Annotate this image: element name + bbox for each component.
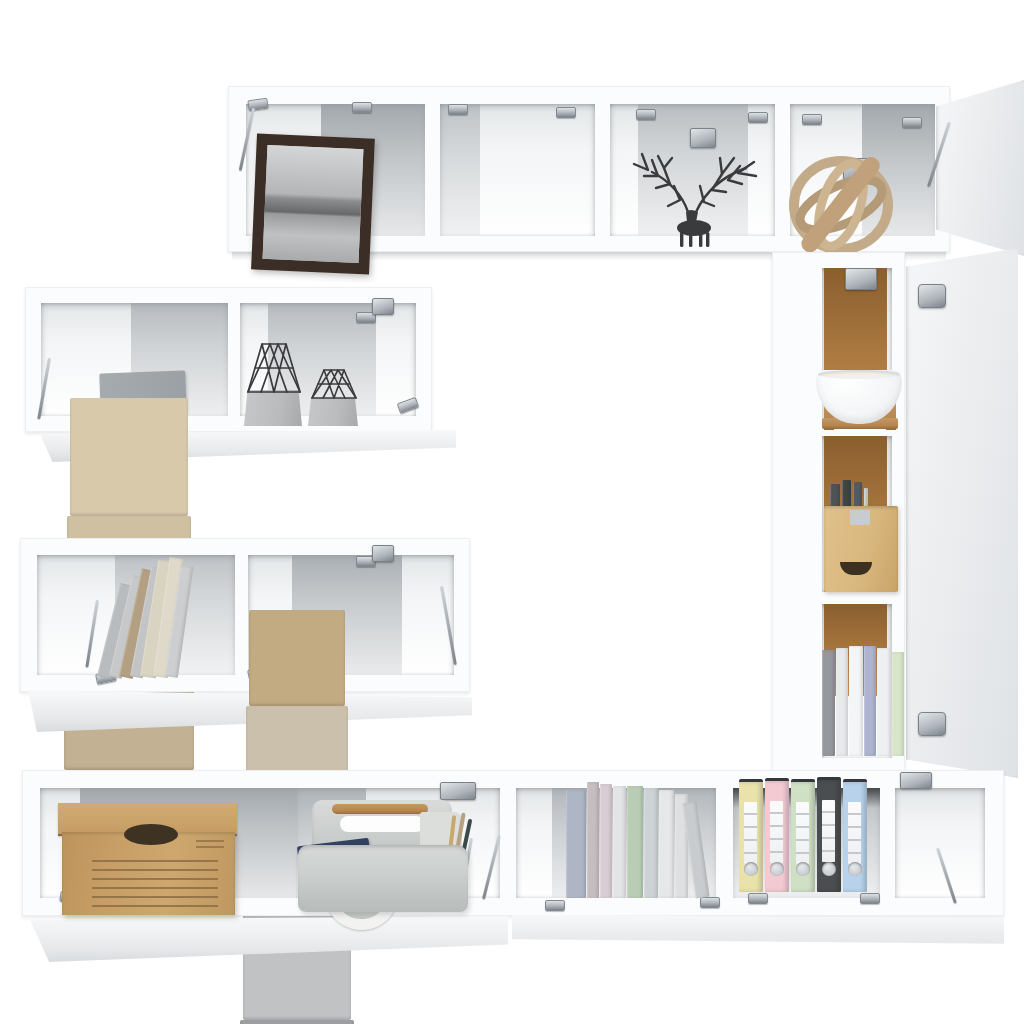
book-spine	[849, 646, 863, 756]
box-print-marks	[196, 840, 224, 849]
box-handle-hole	[124, 824, 178, 845]
caddy-handle-opening	[340, 816, 424, 832]
ring-binders-row	[739, 780, 867, 892]
vase-small-wire-top	[310, 368, 358, 400]
box-handle-cutout	[840, 562, 872, 575]
wooden-orb-sculpture	[786, 155, 896, 255]
hinge-plate	[845, 268, 877, 290]
hinge-bracket	[700, 897, 720, 908]
book-spine	[644, 788, 658, 898]
box-label-patch	[850, 510, 870, 525]
caddy-tray	[298, 845, 468, 912]
top-shelf-flap-door-open	[936, 80, 1024, 256]
book-spine	[822, 650, 835, 756]
kraft-storage-box	[824, 506, 898, 592]
book-spine	[600, 784, 612, 898]
deer-figurine	[612, 128, 774, 248]
cup-hinge	[918, 712, 946, 736]
top-shelf-compartment-empty	[440, 104, 595, 236]
hinge-bracket	[352, 102, 372, 113]
stacked-book	[70, 398, 188, 516]
book-spine	[627, 786, 643, 898]
hinge-bracket	[748, 112, 768, 123]
hinge-bracket	[902, 117, 922, 128]
picture-frame	[251, 133, 375, 274]
book-spine	[659, 790, 674, 898]
bottom-flap-door-open-right	[512, 912, 1004, 956]
book-spine	[877, 648, 891, 756]
hinge-bracket	[448, 104, 468, 115]
book-spine	[892, 652, 904, 756]
box-label-lines	[92, 860, 218, 908]
bottom-books-row	[566, 786, 703, 898]
book-spine	[587, 782, 599, 898]
cabinet-books-row	[822, 646, 904, 756]
flap-stay-bracket	[900, 772, 932, 789]
hinge-bracket	[556, 107, 576, 118]
flap-stay-bracket	[372, 298, 394, 315]
book-spine	[613, 786, 626, 898]
cabinet-door-open	[906, 248, 1018, 778]
cup-hinge	[918, 284, 946, 308]
book-spine	[566, 790, 586, 898]
book-spine	[836, 648, 848, 756]
ring-binder	[765, 778, 789, 892]
hinge-bracket	[802, 114, 822, 125]
landscape-photo	[263, 145, 364, 263]
hinge-bracket	[545, 900, 565, 911]
vase-large-body	[244, 390, 302, 426]
folded-textile	[249, 610, 345, 706]
caddy-wood-handle	[332, 804, 428, 814]
hinge-bracket	[860, 893, 880, 904]
vase-large-wire-top	[246, 342, 302, 394]
vase-small-body	[308, 398, 358, 426]
hinge-bracket	[748, 893, 768, 904]
bottom-compartment-empty	[895, 788, 985, 898]
hinge-bracket	[636, 109, 656, 120]
flap-stay-bracket	[440, 782, 476, 800]
flap-stay-bracket	[372, 545, 394, 562]
book-spine	[864, 646, 876, 756]
back-panel-shade	[440, 104, 480, 236]
leaning-books-row	[100, 552, 178, 676]
ring-binder	[817, 777, 841, 892]
ring-binder	[791, 779, 815, 892]
product-photo-scene	[0, 0, 1024, 1024]
folded-textile	[240, 1020, 354, 1024]
ring-binder	[739, 779, 763, 892]
ring-binder	[843, 779, 867, 892]
